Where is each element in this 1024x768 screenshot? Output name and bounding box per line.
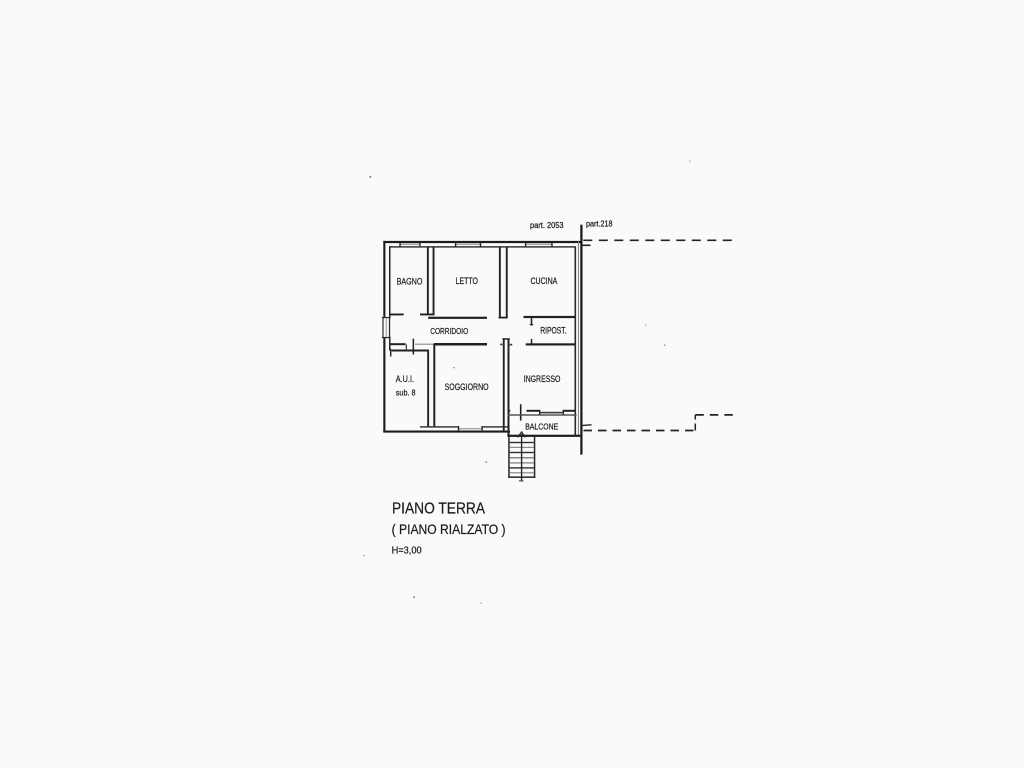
- svg-text:CORRIDOIO: CORRIDOIO: [430, 327, 468, 336]
- svg-text:part.218: part.218: [586, 220, 613, 229]
- svg-text:PIANO TERRA: PIANO TERRA: [392, 501, 486, 518]
- svg-text:part. 2053: part. 2053: [530, 221, 564, 230]
- svg-text:( PIANO RIALZATO ): ( PIANO RIALZATO ): [392, 521, 506, 537]
- svg-text:BALCONE: BALCONE: [525, 422, 558, 432]
- svg-text:SOGGIORNO: SOGGIORNO: [445, 382, 489, 392]
- svg-text:RIPOST.: RIPOST.: [540, 326, 566, 336]
- svg-text:H=3,00: H=3,00: [392, 546, 422, 557]
- svg-text:INGRESSO: INGRESSO: [524, 374, 561, 384]
- svg-text:A.U.I.: A.U.I.: [396, 374, 414, 384]
- svg-text:CUCINA: CUCINA: [531, 276, 558, 286]
- svg-text:sub. 8: sub. 8: [396, 388, 416, 398]
- svg-text:LETTO: LETTO: [456, 276, 478, 286]
- svg-text:BAGNO: BAGNO: [397, 276, 423, 286]
